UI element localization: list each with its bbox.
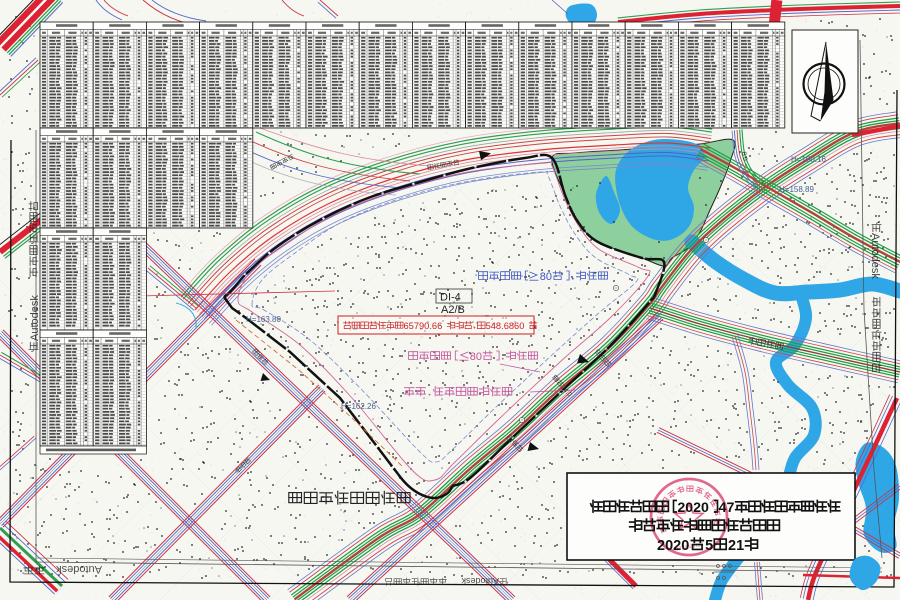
svg-text:47: 47 [719,500,735,516]
svg-text:548.6860: 548.6860 [486,321,525,331]
svg-text:2020: 2020 [657,538,689,554]
svg-text:2020: 2020 [677,500,709,516]
svg-text:H=158.89: H=158.89 [779,185,814,194]
svg-text:80: 80 [540,271,552,283]
svg-text:DI-4: DI-4 [440,292,461,304]
svg-text:Autodesk: Autodesk [29,295,41,341]
svg-text:80: 80 [470,351,482,363]
svg-text:65790.66: 65790.66 [404,321,443,331]
svg-text:5: 5 [705,538,713,554]
svg-text:H=163.80: H=163.80 [246,315,281,324]
svg-text:21: 21 [728,538,744,554]
svg-text:A2/B: A2/B [441,304,465,316]
svg-text:H=160.16: H=160.16 [791,155,826,164]
svg-text:Autodesk: Autodesk [461,576,499,586]
svg-text:Autodesk: Autodesk [56,563,102,575]
svg-text:Autodesk: Autodesk [869,233,881,279]
svg-text:H=162.26: H=162.26 [341,402,376,411]
